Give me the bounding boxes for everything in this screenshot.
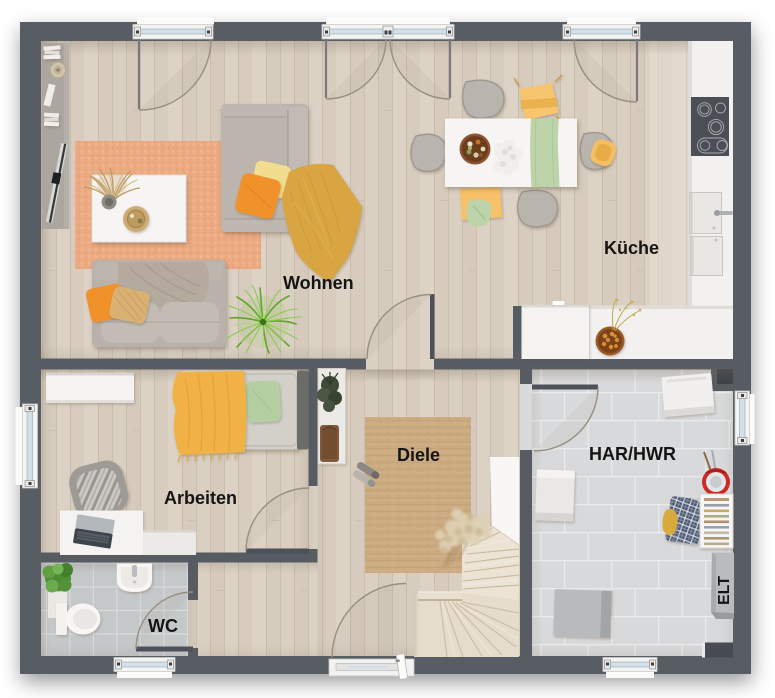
svg-text:ELT: ELT: [716, 576, 733, 605]
svg-text:HAR/HWR: HAR/HWR: [589, 444, 676, 464]
svg-text:Küche: Küche: [604, 238, 659, 258]
svg-text:WC: WC: [148, 616, 178, 636]
svg-text:Wohnen: Wohnen: [283, 273, 354, 293]
svg-text:Diele: Diele: [397, 445, 440, 465]
svg-text:Arbeiten: Arbeiten: [164, 488, 237, 508]
